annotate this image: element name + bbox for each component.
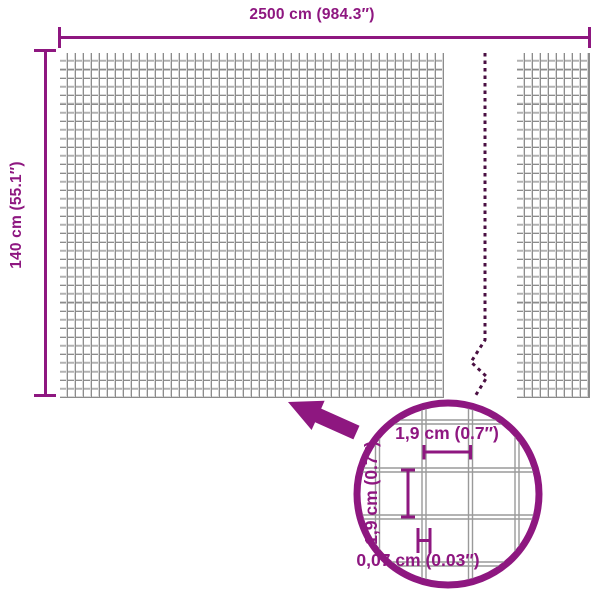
mesh-height-label: 1,9 cm (0.7″) [361,441,381,545]
panel-break-dashed-line [471,53,487,398]
wire-thickness-label: 0,07 cm (0.03″) [356,550,479,570]
zoom-callout-arrow-icon [288,401,360,440]
diagram-overlay: 1,9 cm (0.7″) 1,9 cm (0.7″) 0,07 cm (0.0… [0,0,600,600]
mesh-width-label: 1,9 cm (0.7″) [395,423,499,443]
product-dimension-diagram: 2500 cm (984.3″) 140 cm (55.1″) [0,0,600,600]
